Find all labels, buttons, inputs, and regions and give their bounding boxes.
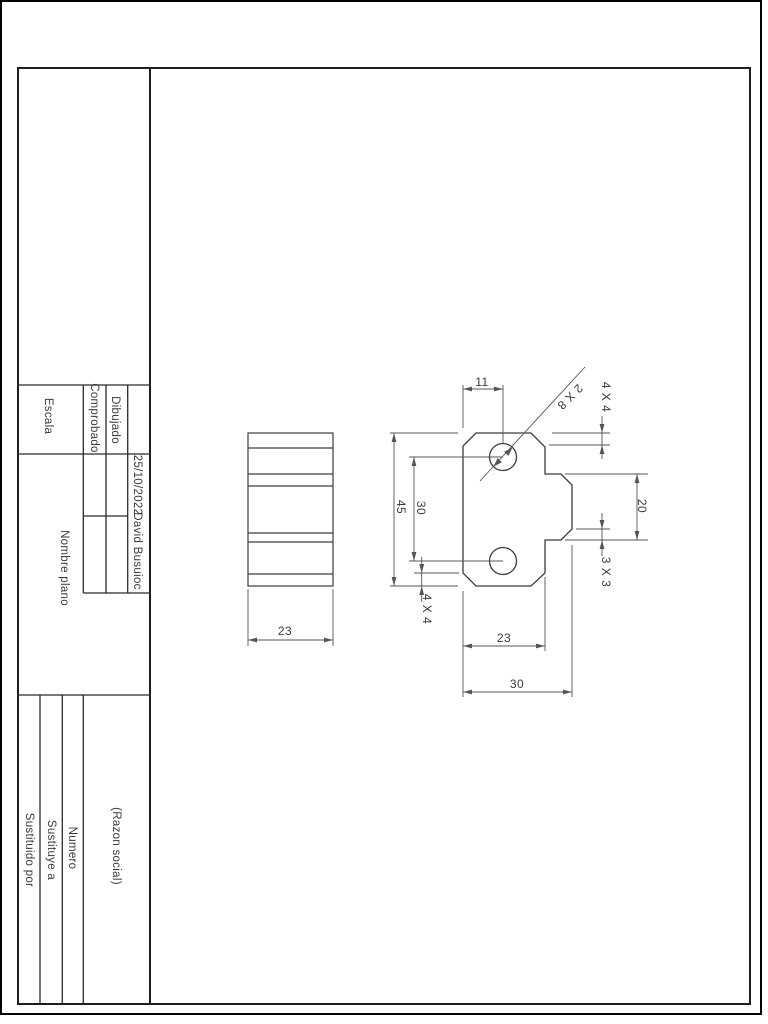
dim-side-depth-text: 23	[278, 624, 292, 638]
razon-social-label: (Razon social)	[110, 807, 122, 885]
comprobado-label: Comprobado	[88, 383, 100, 452]
drawing-author: David Busuioc	[131, 512, 143, 589]
dim-hole-offset	[463, 385, 503, 443]
holes-note-text: 2 X 8	[554, 381, 585, 412]
sustituido-por-label: Sustituido por	[23, 813, 35, 888]
side-view-outline	[248, 433, 333, 586]
dim-tab-width-text: 20	[635, 499, 649, 513]
dim-total-width-text: 30	[510, 677, 524, 691]
dim-chamfer-tab-text: 3 X 3	[599, 557, 613, 588]
numero-label: Numero	[66, 827, 78, 870]
drawing-sheet: Escala Comprobado Dibujado 25/10/2022 Da…	[0, 0, 768, 1024]
dim-total-width	[463, 545, 572, 697]
title-block-grid	[18, 385, 150, 1004]
dim-total-height-text: 45	[394, 500, 408, 514]
dim-chamfer-top-right-text: 4 X 4	[599, 382, 613, 413]
dimensions	[248, 367, 648, 697]
front-view	[463, 433, 572, 586]
sustituye-a-label: Sustituye a	[45, 820, 57, 880]
dibujado-label: Dibujado	[109, 396, 121, 444]
dim-hole-spacing-text: 30	[414, 501, 428, 515]
escala-label: Escala	[42, 398, 54, 435]
part-outline	[463, 433, 572, 586]
dim-body-width-text: 23	[497, 631, 511, 645]
sheet-canvas: Escala Comprobado Dibujado 25/10/2022 Da…	[0, 0, 768, 1024]
side-view	[248, 433, 333, 586]
drawing-date: 25/10/2022	[131, 455, 143, 516]
dim-chamfer-top-right	[549, 416, 610, 459]
nombre-plano-label: Nombre plano	[58, 530, 70, 606]
leader-holes-note	[480, 367, 585, 481]
dim-chamfer-tab	[576, 513, 610, 556]
dim-hole-offset-text: 11	[475, 375, 488, 389]
dim-chamfer-bottom-left-text: 4 X 4	[420, 594, 434, 625]
